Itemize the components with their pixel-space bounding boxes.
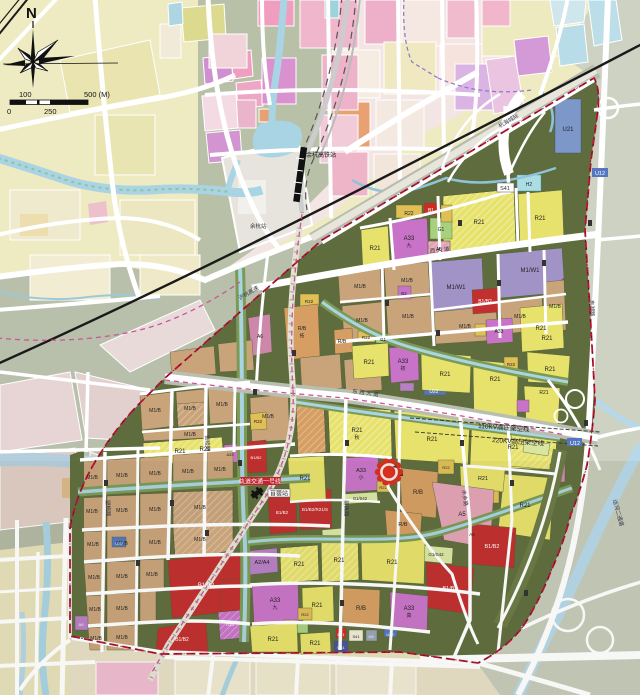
- svg-text:U12: U12: [570, 441, 580, 447]
- svg-text:A33: A33: [495, 329, 504, 335]
- svg-text:初: 初: [400, 365, 405, 372]
- svg-text:R21: R21: [473, 220, 485, 226]
- svg-text:R21: R21: [539, 390, 548, 396]
- svg-text:100: 100: [19, 90, 32, 99]
- svg-text:M1/B: M1/B: [184, 432, 196, 438]
- svg-text:M1/B: M1/B: [549, 304, 561, 310]
- svg-text:余杭高铁站: 余杭高铁站: [306, 151, 336, 159]
- svg-text:A33: A33: [404, 236, 415, 242]
- svg-text:U22: U22: [429, 389, 438, 395]
- svg-text:R21: R21: [541, 336, 553, 342]
- svg-text:M1/B: M1/B: [149, 408, 161, 414]
- svg-text:M1/B: M1/B: [216, 402, 228, 408]
- svg-text:500 (M): 500 (M): [84, 90, 110, 99]
- svg-text:M1/B: M1/B: [262, 414, 274, 420]
- svg-text:R22: R22: [362, 335, 371, 340]
- svg-text:九: 九: [406, 242, 411, 249]
- svg-text:R21: R21: [351, 428, 363, 434]
- svg-text:R21: R21: [439, 372, 451, 378]
- svg-text:R22: R22: [305, 299, 314, 304]
- svg-text:M1/B: M1/B: [459, 324, 471, 330]
- svg-text:G1: G1: [380, 337, 387, 342]
- svg-text:R21: R21: [507, 445, 519, 451]
- svg-text:R21: R21: [426, 437, 438, 443]
- svg-text:秋: 秋: [354, 434, 359, 441]
- svg-text:B1/B2: B1/B2: [478, 299, 492, 305]
- svg-text:R22: R22: [507, 362, 516, 367]
- svg-text:余杭站: 余杭站: [250, 222, 267, 230]
- svg-text:B2: B2: [401, 291, 407, 296]
- svg-text:M1/B: M1/B: [402, 314, 414, 320]
- svg-text:R21: R21: [363, 360, 375, 366]
- svg-text:M1/W1: M1/W1: [446, 285, 466, 291]
- svg-text:0: 0: [7, 107, 11, 116]
- svg-text:M1/B: M1/B: [514, 314, 526, 320]
- svg-text:G1: G1: [438, 227, 445, 233]
- svg-text:M1/B: M1/B: [356, 318, 368, 324]
- svg-text:拓: 拓: [300, 332, 305, 339]
- svg-text:A33: A33: [226, 452, 234, 457]
- svg-text:R/B: R/B: [298, 326, 307, 332]
- svg-text:B1/B2: B1/B2: [251, 455, 263, 460]
- svg-text:S41: S41: [500, 186, 510, 192]
- svg-text:A6: A6: [257, 334, 263, 340]
- svg-text:R/B: R/B: [338, 339, 347, 345]
- svg-text:R21: R21: [174, 449, 186, 455]
- svg-text:M1/B: M1/B: [401, 278, 413, 284]
- svg-text:A33: A33: [398, 359, 409, 365]
- svg-text:N: N: [26, 5, 37, 22]
- svg-text:R21: R21: [535, 326, 547, 332]
- svg-text:R22: R22: [404, 211, 413, 217]
- svg-text:R21: R21: [489, 377, 501, 383]
- svg-text:R21: R21: [369, 246, 381, 252]
- svg-text:M1/B: M1/B: [354, 284, 366, 290]
- svg-text:250: 250: [44, 107, 57, 116]
- svg-text:M1/B: M1/B: [184, 406, 196, 412]
- svg-text:B1: B1: [428, 208, 434, 214]
- svg-text:M1/W1: M1/W1: [520, 268, 540, 274]
- svg-text:R21: R21: [544, 367, 556, 373]
- svg-text:H2: H2: [526, 182, 533, 188]
- svg-text:U21: U21: [562, 127, 574, 133]
- svg-text:R21: R21: [534, 216, 546, 222]
- svg-text:R22: R22: [254, 419, 263, 424]
- svg-text:U12: U12: [595, 171, 605, 177]
